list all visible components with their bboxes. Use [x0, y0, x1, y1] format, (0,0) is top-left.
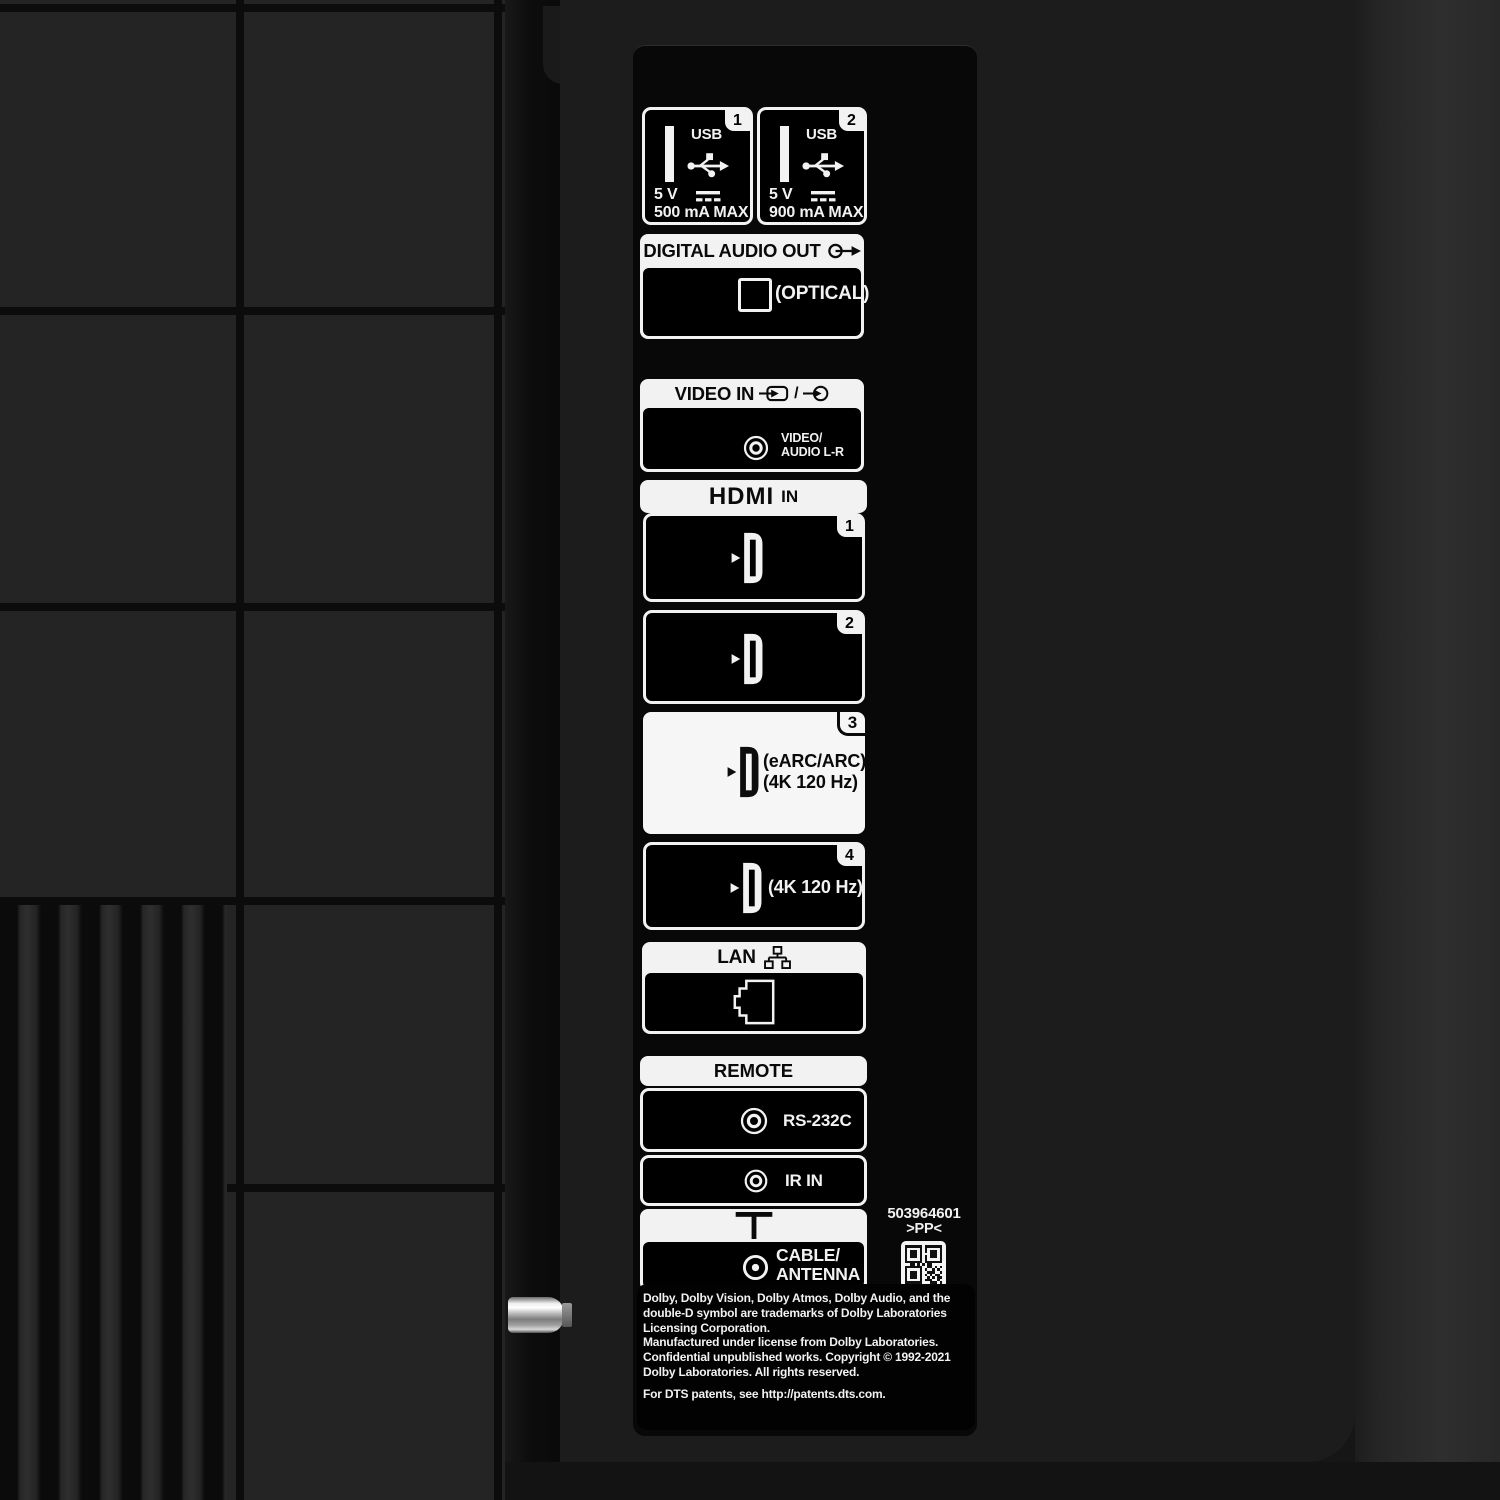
- hdmi-2-number-tab: 2: [837, 613, 862, 634]
- hdmi-logo: HDMI: [709, 483, 774, 511]
- hdmi-connector-icon: [727, 745, 761, 799]
- tv-rear-panel-photo: 1 USB 5 V 500 mA MAX 2 USB 5 V 900 m: [0, 0, 1500, 1500]
- panel-groove-horizontal: [0, 897, 505, 905]
- hdmi-4-number-tab: 4: [837, 845, 862, 866]
- digital-audio-out-title: DIGITAL AUDIO OUT: [643, 240, 820, 262]
- video-in-title: VIDEO IN: [675, 383, 755, 405]
- usb-1-label: USB: [691, 126, 722, 143]
- ir-in-port-box[interactable]: IR IN: [640, 1155, 867, 1206]
- usb-2-voltage: 5 V: [769, 186, 792, 204]
- hdmi-port-4-box[interactable]: 4 (4K 120 Hz): [643, 842, 865, 930]
- hdmi-2-number: 2: [845, 615, 854, 633]
- ir-in-jack-icon: [744, 1169, 768, 1193]
- usb-trident-icon: [802, 152, 844, 180]
- rca-jack-icon[interactable]: [743, 435, 769, 461]
- panel-groove-horizontal: [0, 307, 505, 315]
- rs232c-port-box[interactable]: RS-232C: [640, 1088, 867, 1152]
- audio-input-circle-icon: [803, 385, 829, 402]
- rj45-port-icon[interactable]: [731, 978, 777, 1026]
- video-in-separator: /: [794, 385, 798, 403]
- pp-code: >PP<: [878, 1221, 970, 1237]
- usb-2-number-tab: 2: [839, 110, 864, 131]
- video-in-port-label-line1: VIDEO/: [781, 431, 844, 445]
- lan-title: LAN: [717, 947, 755, 969]
- legal-line: Manufactured under license from Dolby La…: [643, 1335, 975, 1350]
- usb-slot-icon: [780, 126, 789, 182]
- lan-unit: LAN: [642, 942, 866, 1034]
- ventilation-slats: [0, 905, 227, 1500]
- legal-line: Confidential unpublished works. Copyrigh…: [643, 1350, 975, 1365]
- optical-port-label: (OPTICAL): [775, 283, 869, 305]
- back-cover-edge-column: [505, 0, 560, 1500]
- cable-antenna-unit: CABLE/ ANTENNA: [640, 1209, 867, 1291]
- panel-groove-horizontal: [0, 603, 505, 611]
- digital-audio-out-body: (OPTICAL): [643, 268, 861, 336]
- usb-slot-icon: [665, 126, 674, 182]
- usb-2-current: 900 mA MAX: [769, 204, 863, 222]
- antenna-icon: [734, 1212, 774, 1239]
- rear-cover-right-face: [1355, 0, 1500, 1500]
- usb-port-2-box[interactable]: 2 USB 5 V 900 mA MAX: [757, 107, 867, 225]
- hdmi-4-label: (4K 120 Hz): [768, 877, 863, 898]
- legal-line-dts: For DTS patents, see http://patents.dts.…: [643, 1387, 975, 1402]
- hdmi-connector-icon: [731, 632, 765, 686]
- lan-body: [645, 973, 863, 1031]
- legal-line: Licensing Corporation.: [643, 1321, 975, 1336]
- hdmi-port-2-box[interactable]: 2: [643, 610, 865, 704]
- ir-in-label: IR IN: [785, 1171, 823, 1191]
- video-in-body: VIDEO/ AUDIO L-R: [643, 408, 861, 469]
- audio-out-icon: [827, 241, 861, 261]
- legal-line: Dolby, Dolby Vision, Dolby Atmos, Dolby …: [643, 1291, 975, 1306]
- video-in-port-label-line2: AUDIO L-R: [781, 445, 844, 459]
- bottom-bezel-strip: [505, 1462, 1500, 1500]
- usb-1-number-tab: 1: [725, 110, 750, 131]
- video-input-rect-icon: [759, 385, 789, 402]
- hdmi-connector-icon: [731, 531, 765, 585]
- hdmi-3-number: 3: [848, 713, 857, 733]
- hdmi-in-suffix: IN: [781, 487, 798, 507]
- hdmi-connector-icon: [730, 861, 764, 915]
- qr-code: [901, 1241, 946, 1288]
- cable-antenna-label-line1: CABLE/: [776, 1246, 860, 1265]
- panel-groove-horizontal: [0, 4, 505, 12]
- usb-1-current: 500 mA MAX: [654, 204, 748, 222]
- mounting-screw-pin: [562, 1303, 572, 1327]
- remote-header: REMOTE: [640, 1056, 867, 1086]
- usb-2-number: 2: [847, 112, 856, 130]
- digital-audio-out-unit: DIGITAL AUDIO OUT (OPTICAL): [640, 234, 864, 339]
- hdmi-port-3-box[interactable]: 3 (eARC/ARC) (4K 120 Hz): [643, 712, 865, 834]
- rs232c-jack-icon: [740, 1107, 768, 1135]
- hdmi-port-1-box[interactable]: 1: [643, 513, 865, 602]
- panel-groove-vertical: [236, 0, 244, 1500]
- cable-antenna-body: CABLE/ ANTENNA: [643, 1242, 864, 1288]
- qr-code-pattern: [905, 1245, 942, 1284]
- legal-text: Dolby, Dolby Vision, Dolby Atmos, Dolby …: [643, 1291, 975, 1402]
- cable-antenna-label: CABLE/ ANTENNA: [776, 1246, 860, 1284]
- hdmi-3-label-line2: (4K 120 Hz): [763, 772, 866, 793]
- legal-line: double-D symbol are trademarks of Dolby …: [643, 1306, 975, 1321]
- serial-number: 503964601: [878, 1205, 970, 1222]
- usb-trident-icon: [687, 152, 729, 180]
- hdmi-3-label-line1: (eARC/ARC): [763, 751, 866, 772]
- hdmi-3-number-tab: 3: [837, 712, 865, 736]
- hdmi-1-number-tab: 1: [837, 516, 862, 537]
- rs232c-label: RS-232C: [783, 1111, 852, 1131]
- mounting-screw: [508, 1297, 564, 1333]
- cable-antenna-label-line2: ANTENNA: [776, 1265, 860, 1284]
- remote-title: REMOTE: [714, 1060, 793, 1082]
- lan-network-icon: [764, 946, 791, 969]
- hdmi-4-number: 4: [845, 847, 854, 865]
- usb-2-label: USB: [806, 126, 837, 143]
- usb-1-number: 1: [733, 112, 742, 130]
- dc-symbol-icon: [695, 191, 721, 202]
- hdmi-3-label: (eARC/ARC) (4K 120 Hz): [763, 751, 866, 793]
- legal-line: Dolby Laboratories. All rights reserved.: [643, 1365, 975, 1380]
- coax-port-icon[interactable]: [742, 1254, 769, 1281]
- usb-1-voltage: 5 V: [654, 186, 677, 204]
- panel-groove-vertical: [494, 0, 502, 1500]
- video-in-unit: VIDEO IN / VIDEO/ AUDIO L-R: [640, 379, 864, 472]
- usb-port-1-box[interactable]: 1 USB 5 V 500 mA MAX: [642, 107, 753, 225]
- video-in-port-label: VIDEO/ AUDIO L-R: [781, 431, 844, 459]
- hdmi-in-header: HDMI IN: [640, 480, 867, 513]
- optical-port-icon[interactable]: [738, 278, 772, 312]
- dc-symbol-icon: [810, 191, 836, 202]
- hdmi-1-number: 1: [845, 518, 854, 536]
